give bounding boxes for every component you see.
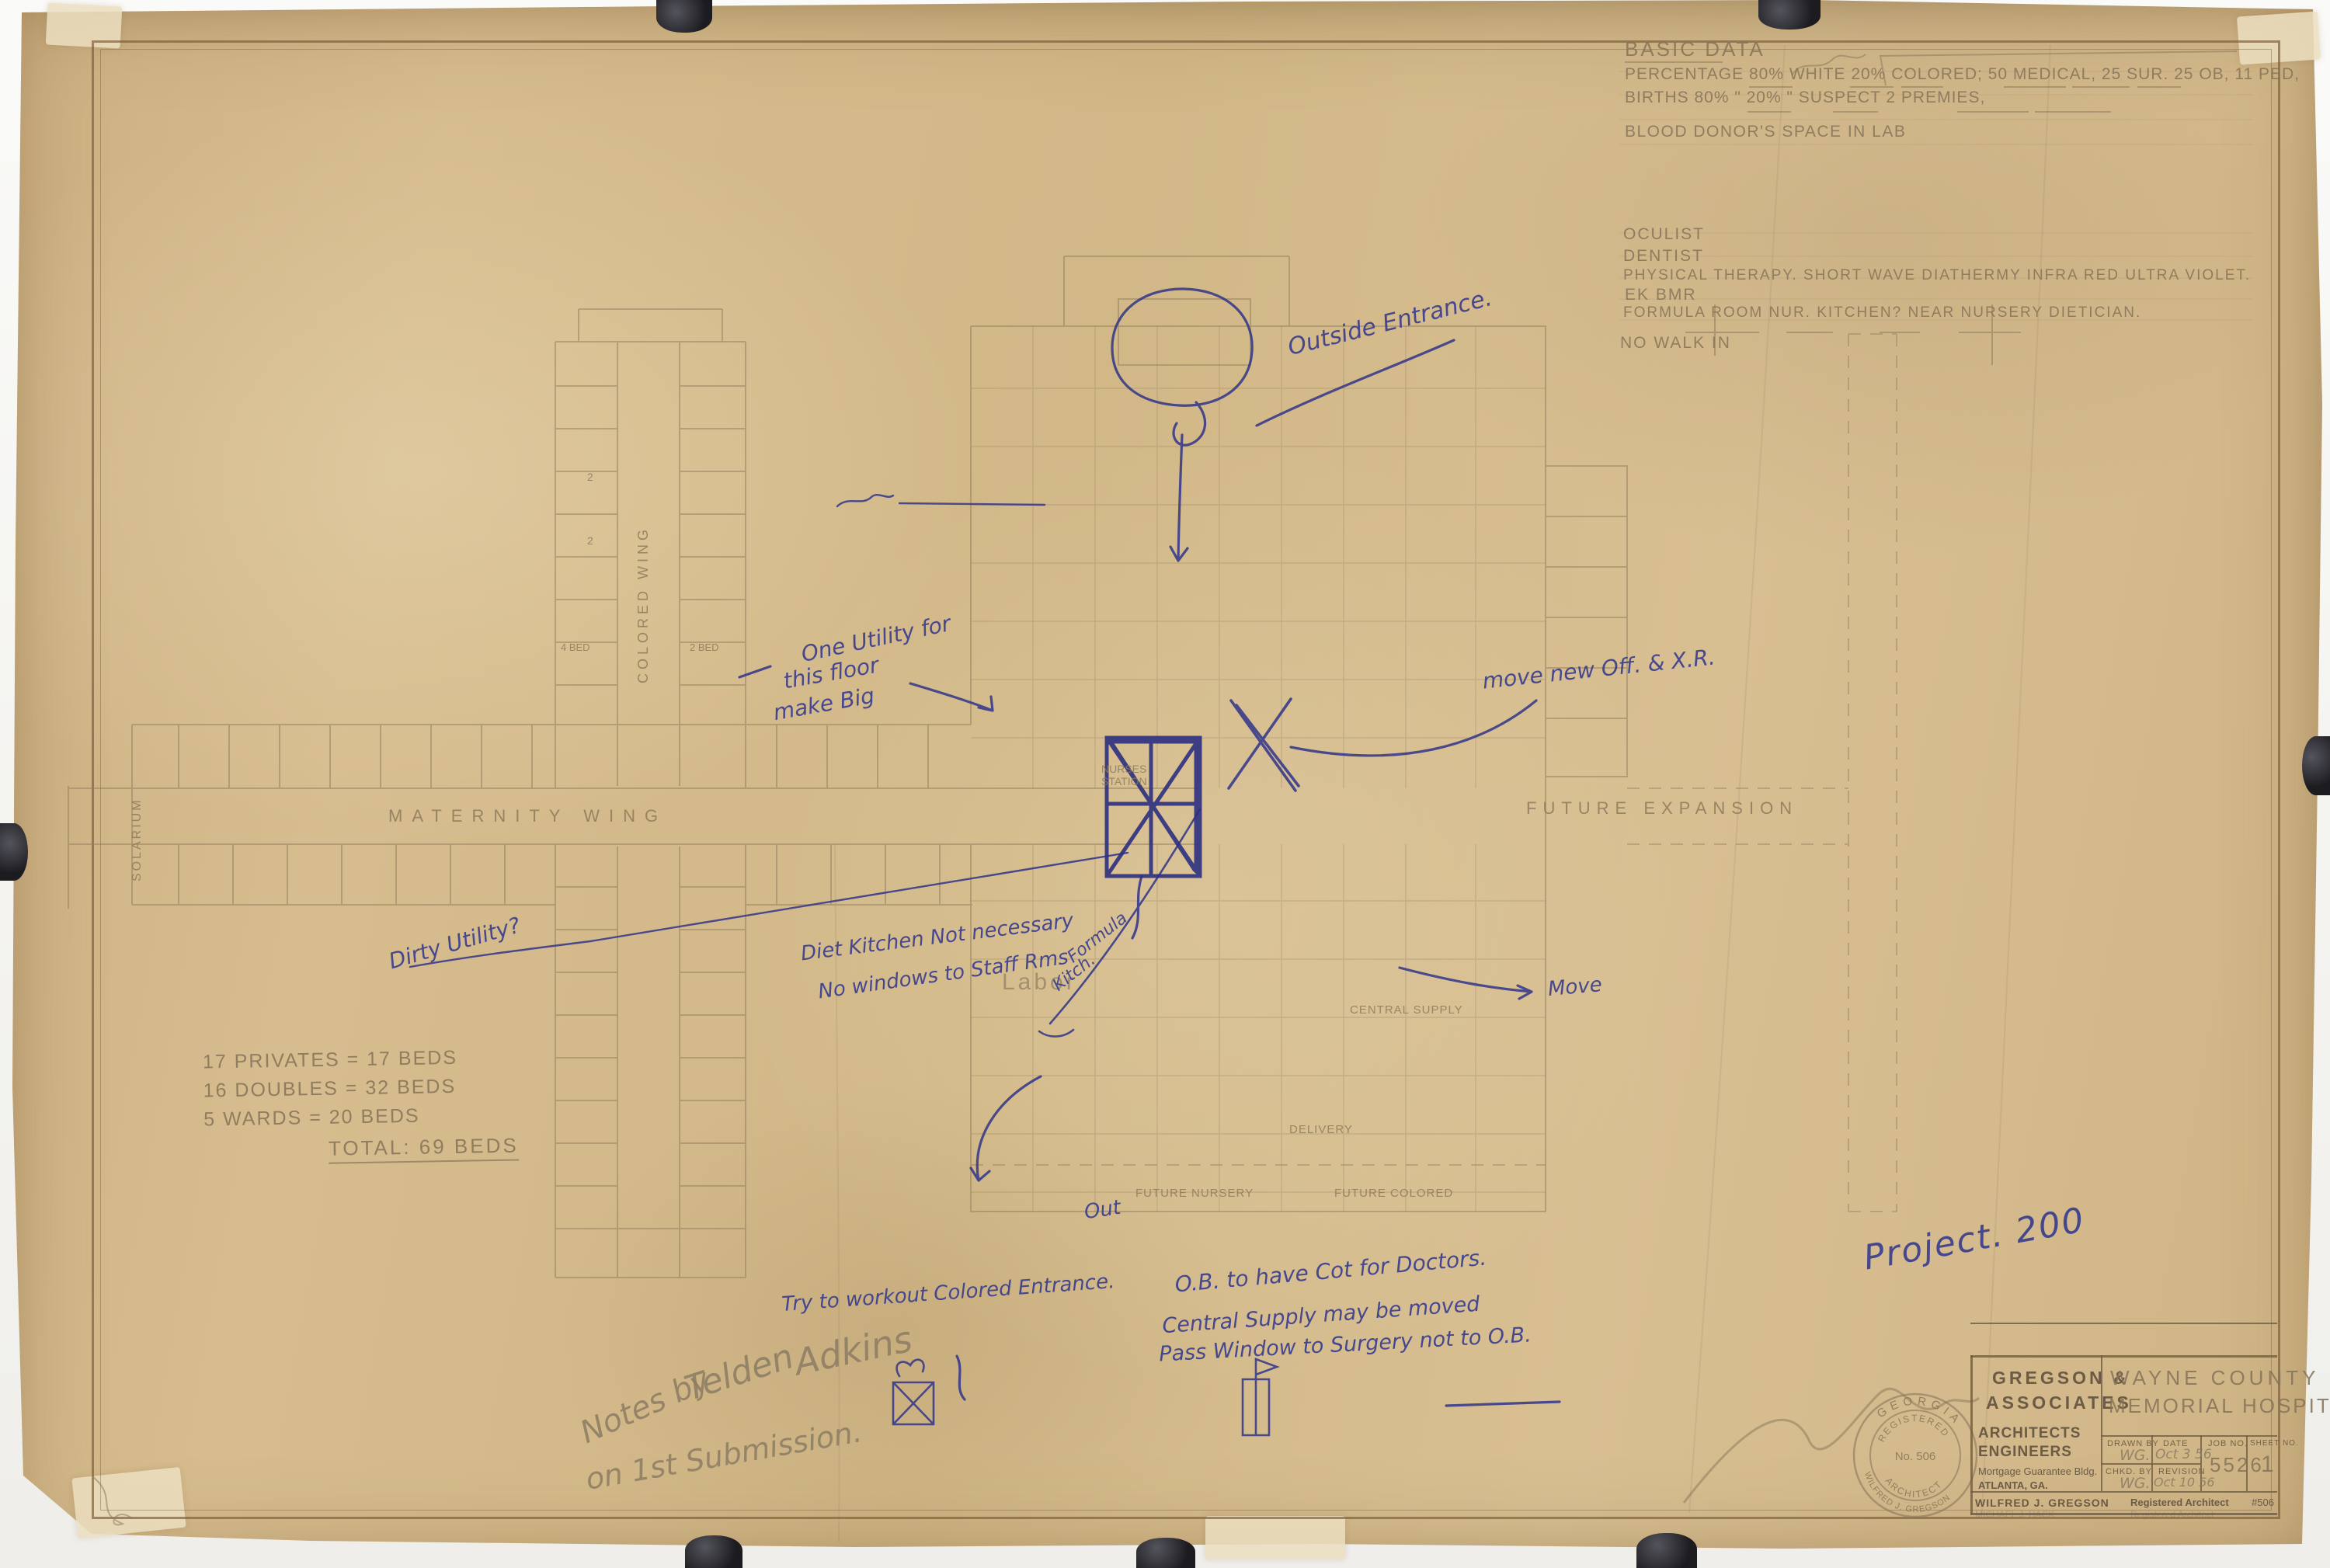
wing-room-partitions-top [179,725,928,788]
label-central-supply: CENTRAL SUPPLY [1350,1003,1463,1017]
label-2-bed: 2 BED [690,641,719,653]
title-block: GREGSON & ASSOCIATES ARCHITECTS ENGINEER… [1970,1323,2277,1514]
tb-project-1: WAYNE COUNTY [2110,1366,2319,1390]
basic-data-formula-room: FORMULA ROOM NUR. KITCHEN? NEAR NURSERY … [1623,304,2141,322]
basic-data-percentage: PERCENTAGE 80% WHITE 20% COLORED; 50 MED… [1625,65,2300,84]
tb-job-value: 5526 [2210,1453,2264,1477]
tb-line-proj-bottom [2101,1435,2277,1437]
door-sketch-2 [1243,1359,1277,1435]
corner-pencil-scribble [93,1477,132,1525]
label-future-expansion: FUTURE EXPANSION [1526,798,1798,819]
basic-data-title: BASIC DATA [1625,37,1765,61]
binder-clip-top-1 [656,0,712,33]
ink-long-leader-line [410,853,1128,967]
scanned-drawing-canvas: BASIC DATA PERCENTAGE 80% WHITE 20% COLO… [0,0,2330,1568]
tb-role-1: ARCHITECTS [1978,1425,2081,1442]
ink-move-arrow [1400,968,1532,999]
tb-job-label: JOB NO. [2208,1439,2248,1448]
label-maternity-wing: MATERNITY WING [388,806,667,826]
label-nurses-station-2: STATION [1101,775,1147,787]
lower-wing-outline [555,844,746,1278]
binder-clip-bottom-1 [685,1535,742,1568]
label-4-bed: 4 BED [561,641,590,653]
stamp-number: No. 506 [1895,1450,1936,1463]
binder-clip-left-1 [0,823,28,881]
label-colored-wing: COLORED WING [635,450,652,683]
label-future-colored: FUTURE COLORED [1334,1187,1453,1200]
basic-data-oculist: OCULIST [1623,225,1705,244]
central-block-outline [971,256,1627,1212]
label-nurses-station-1: NURSES [1101,763,1146,775]
basic-data-ek-bmr: EK BMR [1625,286,1697,304]
label-future-nursery: FUTURE NURSERY [1135,1187,1254,1200]
tb-address-2: ATLANTA, GA. [1978,1479,2048,1491]
bed-tally-row-wards: 5 WARDS = 20 BEDS [203,1103,518,1131]
binder-clip-top-2 [1758,0,1821,30]
tb-revision-value: Oct 10 56 [2154,1475,2215,1490]
bed-tally-row-doubles: 16 DOUBLES = 32 BEDS [203,1074,517,1102]
east-rooms-partitions [1546,516,1627,718]
tb-faded-name: MICHAEL J. HACK [1975,1509,2054,1520]
ink-stray-line [1446,1402,1560,1406]
illegible-note-scribble [837,495,1045,506]
door-sketch-1 [893,1360,934,1424]
central-lower-grid [971,844,1546,1212]
ink-crossed-box [1107,738,1200,876]
wing-room-partitions-bottom [179,844,940,905]
label-room-2b: 2 [587,534,593,547]
bed-tally: 17 PRIVATES = 17 BEDS 16 DOUBLES = 32 BE… [203,1045,519,1166]
label-solarium: SOLARIUM [130,765,144,881]
architect-stamp: GEORGIA REGISTERED No. 506 ARCHITECT WIL… [1848,1389,1982,1522]
binder-clip-right-1 [2302,736,2330,795]
tb-sheet-label: SHEET NO. [2250,1439,2299,1448]
tb-faded-registered: Registered Architect [2130,1509,2213,1520]
label-delivery: DELIVERY [1289,1123,1353,1136]
tb-chkd-value: WG. [2120,1475,2151,1492]
tb-date-value: Oct 3 56 [2155,1447,2212,1462]
tb-sheet-value: 1 [2261,1452,2276,1478]
label-room-2a: 2 [587,471,593,483]
bed-tally-row-privates: 17 PRIVATES = 17 BEDS [203,1045,517,1073]
basic-data-no-walk-in: NO WALK IN [1620,334,1731,353]
tb-line-midrow [2101,1463,2200,1465]
note-move: Move [1547,973,1603,1001]
binder-clip-bottom-2 [1136,1538,1195,1568]
ink-move-off-curve [1291,701,1536,756]
bed-tally-total: TOTAL: 69 BEDS [329,1133,519,1163]
tb-role-2: ENGINEERS [1978,1444,2072,1461]
basic-data-births: BIRTHS 80% " 20% " SUSPECT 2 PREMIES, [1625,89,1985,107]
basic-data-blood: BLOOD DONOR'S SPACE IN LAB [1625,123,1906,141]
tb-drawn-by-value: WG. [2120,1447,2151,1464]
basic-data-dentist: DENTIST [1623,247,1704,266]
tb-address-1: Mortgage Guarantee Bldg. [1978,1465,2097,1477]
tb-line-main-top [1970,1355,2277,1358]
tb-license-no: #506 [2252,1497,2274,1508]
ink-arrow-down-entrance [1170,402,1205,561]
basic-data-physical-therapy: PHYSICAL THERAPY. SHORT WAVE DIATHERMY I… [1623,267,2251,284]
tb-line-top [1970,1323,2277,1324]
tb-project-2: MEMORIAL HOSPITAL [2109,1394,2330,1418]
ink-entrance-curve [1257,340,1454,426]
binder-clip-bottom-3 [1636,1533,1697,1568]
ink-big-x [1229,699,1299,791]
tb-architect-name: WILFRED J. GREGSON [1975,1497,2109,1509]
plan-interior-grid [971,326,1546,1212]
ink-tick-mark [957,1356,965,1399]
central-upper-grid [971,326,1546,788]
stamp-text: GEORGIA REGISTERED No. 506 ARCHITECT WIL… [1862,1395,1965,1515]
tb-firm-1: GREGSON & [1992,1368,2130,1389]
tb-registered: Registered Architect [2130,1497,2229,1508]
ink-box-tail [1132,876,1142,938]
